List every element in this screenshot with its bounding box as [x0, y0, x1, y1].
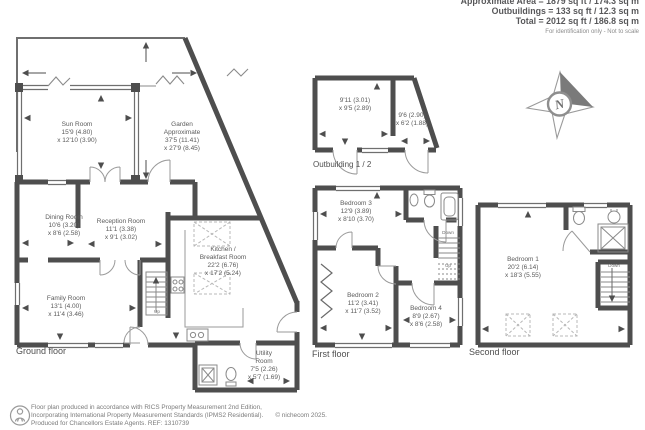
footer-disclaimer: Floor plan produced in accordance with R… — [31, 404, 327, 427]
nichecom-logo-icon — [11, 406, 30, 425]
outbuilding-window — [362, 147, 388, 154]
second-toilet-icon — [573, 207, 585, 225]
room-label-family-room: Family Room 13'1 (4.00) x 11'4 (3.46) — [47, 295, 85, 319]
fence-zigzags — [48, 69, 248, 86]
floorplan-graphics: N — [0, 0, 645, 430]
bathroom-sink-icon — [410, 194, 418, 206]
compass-icon: N — [527, 72, 593, 138]
second-shower-icon — [598, 224, 628, 252]
floor-label-ground: Ground floor — [16, 346, 66, 356]
first-floor-stairs-icon — [438, 238, 460, 279]
stairs-down-label-second: Down — [608, 263, 620, 268]
room-label-bedroom-3: Bedroom 3 12'9 (3.89) x 8'10 (3.70) — [338, 200, 374, 224]
ground-window-overlays — [14, 179, 124, 349]
room-label-sun-room: Sun Room 15'9 (4.80) x 12'10 (3.90) — [57, 121, 97, 145]
second-floor-walls — [478, 205, 630, 345]
chimney-zigzag — [321, 264, 332, 318]
stairs-up-label-first: Up — [445, 263, 451, 268]
second-skylight-icons — [506, 314, 577, 336]
bathroom-toilet-icon — [424, 190, 435, 207]
room-label-garden: Garden Approximate 37'5 (11.41) x 27'9 (… — [164, 121, 201, 153]
floor-label-outbuilding: Outbuilding 1 / 2 — [313, 160, 371, 169]
measure-arrows — [22, 42, 625, 384]
footer-line-2: Incorporating International Property Mea… — [31, 412, 327, 420]
room-label-dining-room: Dining Room 10'6 (3.20) x 8'6 (2.58) — [45, 214, 83, 238]
stairs-down-label-first: Down — [442, 230, 454, 235]
footer-line-3: Produced for Chancellors Estate Agents. … — [31, 420, 327, 428]
room-label-utility-room: Utility Room 7'5 (2.26) x 5'7 (1.69) — [248, 350, 280, 382]
floor-label-second: Second floor — [469, 347, 520, 357]
garden-dimension-arrows — [28, 46, 190, 176]
outbuildings-line: Outbuildings = 133 sq ft / 12.3 sq m — [461, 6, 639, 16]
total-line: Total = 2012 sq ft / 186.8 sq m — [461, 16, 639, 26]
room-label-outbuilding-2: 9'6 (2.90) x 6'2 (1.88) — [396, 112, 428, 128]
room-label-outbuilding-1: 9'11 (3.01) x 9'5 (2.89) — [339, 97, 371, 113]
footer-line-1: Floor plan produced in accordance with R… — [31, 404, 327, 412]
room-label-bedroom-4: Bedroom 4 8'9 (2.67) x 8'6 (2.58) — [410, 305, 442, 329]
room-label-kitchen: Kitchen / Breakfast Room 22'2 (6.76) x 1… — [200, 246, 247, 278]
room-label-bedroom-1: Bedroom 1 20'2 (6.14) x 18'3 (5.55) — [505, 256, 541, 280]
second-sink-icon — [608, 209, 620, 223]
room-label-bedroom-2: Bedroom 2 11'2 (3.41) x 11'7 (3.52) — [345, 292, 380, 316]
toilet-icon — [226, 368, 236, 387]
cooktop-icon — [171, 277, 184, 293]
second-floor-plan — [478, 202, 630, 346]
sink-icon — [187, 329, 208, 341]
second-floor-stairs-icon — [601, 268, 630, 302]
shower-icon — [199, 365, 217, 385]
floorplan-page: N Approximate Area = 1879 sq ft / 174.3 … — [0, 0, 645, 430]
second-floor-doors — [563, 231, 590, 252]
disclaimer-line: For identification only - Not to scale — [461, 27, 639, 37]
copyright-text: © nichecom 2025. — [275, 412, 327, 419]
room-label-reception-room: Reception Room 11'1 (3.38) x 9'1 (3.02) — [97, 218, 145, 242]
bathtub-icon — [441, 193, 458, 220]
stairs-up-label-ground: Up — [154, 309, 160, 314]
area-summary: Approximate Area = 1879 sq ft / 174.3 sq… — [461, 0, 639, 37]
floor-label-first: First floor — [312, 349, 350, 359]
